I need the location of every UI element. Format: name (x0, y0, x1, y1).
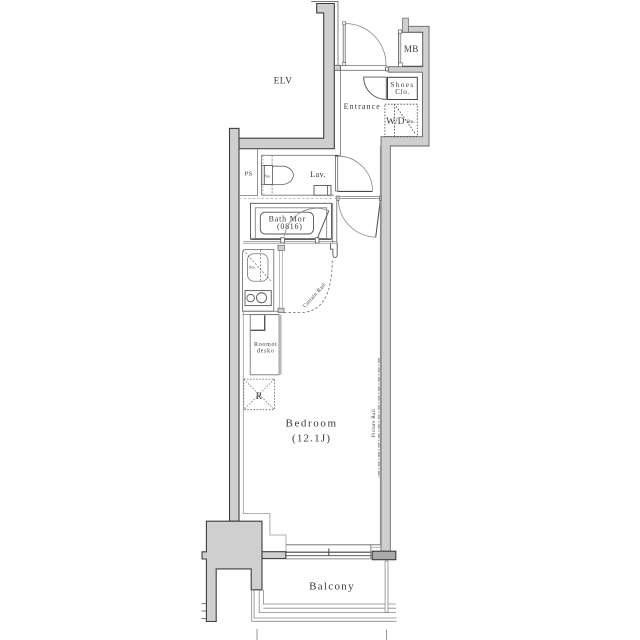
svg-text:Sto.: Sto. (406, 119, 415, 125)
svg-text:(0816): (0816) (277, 222, 303, 231)
svg-text:Sto.: Sto. (265, 175, 271, 179)
svg-text:Roomot: Roomot (254, 342, 278, 348)
svg-text:ELV: ELV (274, 77, 293, 87)
svg-text:Clo.: Clo. (395, 88, 410, 96)
svg-text:Balcony: Balcony (309, 580, 355, 592)
svg-text:R: R (256, 392, 263, 402)
svg-text:MB: MB (404, 44, 419, 54)
svg-text:W/D: W/D (386, 117, 405, 127)
svg-text:(12.1J): (12.1J) (292, 432, 331, 444)
svg-text:Sto.: Sto. (249, 265, 256, 270)
svg-text:desko: desko (257, 348, 275, 354)
svg-text:Entrance: Entrance (344, 102, 381, 111)
svg-text:Picture Rail: Picture Rail (371, 409, 377, 437)
svg-text:Bedroom: Bedroom (286, 418, 338, 430)
svg-text:Lav.: Lav. (310, 170, 326, 179)
svg-text:PS: PS (245, 170, 253, 177)
